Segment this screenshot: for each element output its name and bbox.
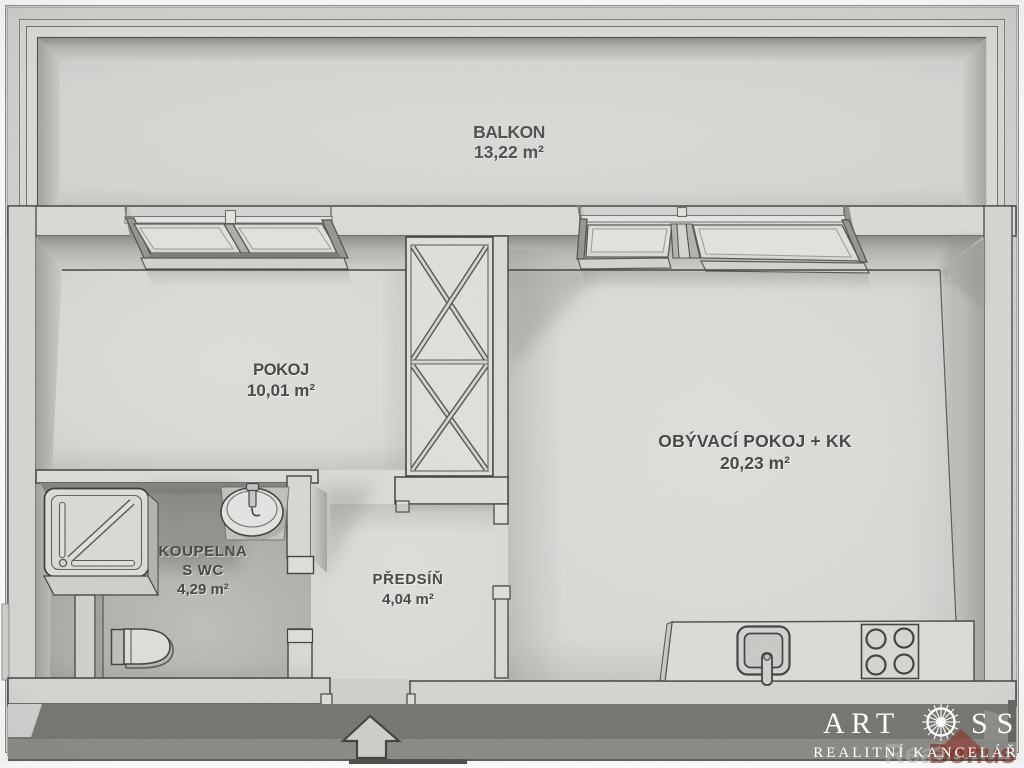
- svg-text:KOUPELNA: KOUPELNA: [159, 543, 248, 560]
- svg-text:REALITNÍ KANCELÁŘ: REALITNÍ KANCELÁŘ: [813, 744, 1019, 761]
- svg-text:S WC: S WC: [182, 562, 224, 579]
- svg-text:POKOJ: POKOJ: [253, 361, 309, 379]
- svg-text:10,01 m²: 10,01 m²: [247, 381, 315, 400]
- svg-text:4,04 m²: 4,04 m²: [382, 591, 434, 608]
- svg-text:20,23 m²: 20,23 m²: [720, 453, 790, 473]
- svg-text:SS: SS: [971, 707, 1022, 740]
- svg-text:PŘEDSÍŇ: PŘEDSÍŇ: [373, 570, 444, 588]
- svg-text:ART: ART: [823, 707, 901, 740]
- svg-text:OBÝVACÍ POKOJ + KK: OBÝVACÍ POKOJ + KK: [658, 430, 852, 451]
- svg-text:4,29 m²: 4,29 m²: [177, 581, 229, 598]
